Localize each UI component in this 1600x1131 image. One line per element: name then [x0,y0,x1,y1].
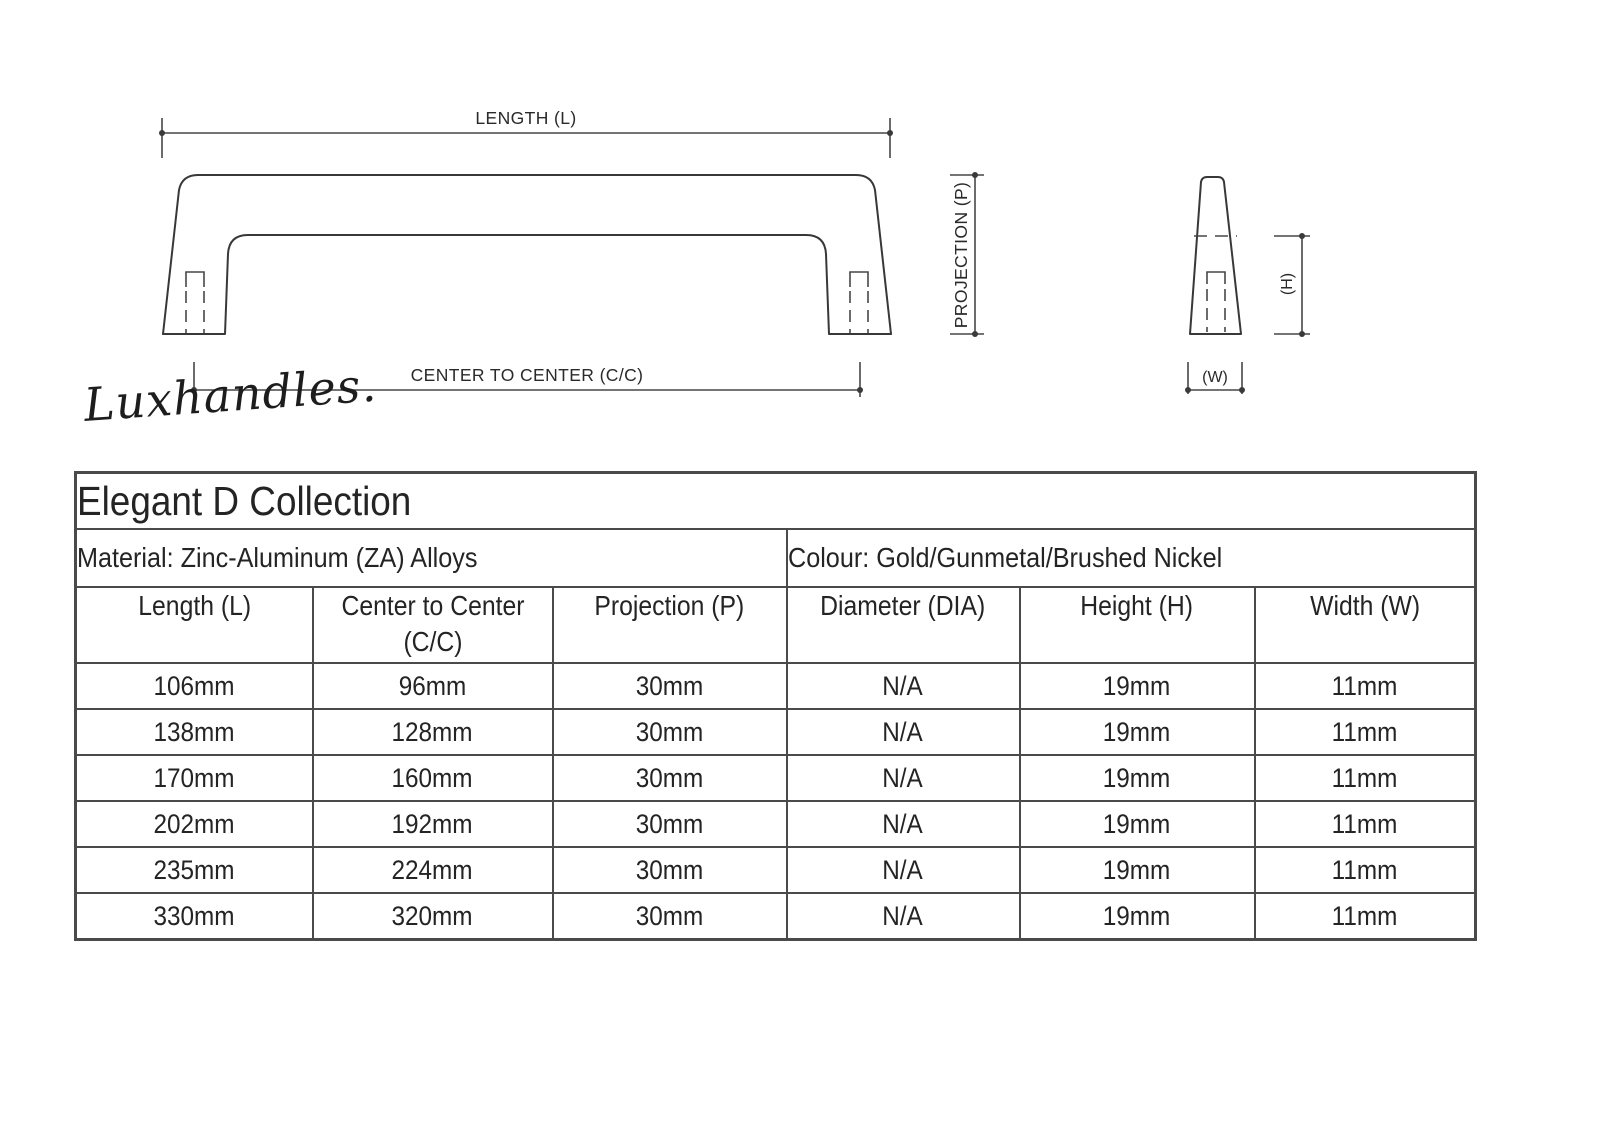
col-header-length: Length (L) [76,587,313,663]
length-dimension-dot-left [159,130,165,136]
length-dimension-label: LENGTH (L) [475,108,576,128]
cell-value: 19mm [1103,717,1171,748]
cell-value: 30mm [636,855,704,886]
col-header-label: Projection (P) [595,588,745,624]
table-row: 235mm 224mm 30mm N/A 19mm 11mm [76,847,1476,893]
cell-value: 160mm [392,763,473,794]
spec-sheet-page: LENGTH (L) CENTER TO CENTER (C/C) PROJEC… [0,0,1600,1131]
length-dimension: LENGTH (L) [159,108,893,158]
cell-value: 170mm [154,763,235,794]
table-cell: 30mm [553,801,787,847]
col-header-label: Diameter (DIA) [820,588,985,624]
cell-value: 30mm [636,763,704,794]
material-cell: Material: Zinc-Aluminum (ZA) Alloys [76,529,787,587]
table-cell: N/A [787,663,1020,709]
table-cell: 138mm [76,709,313,755]
table-cell: 235mm [76,847,313,893]
table-cell: 128mm [313,709,553,755]
cell-value: 19mm [1103,901,1171,932]
col-header-label: Length (L) [138,588,251,624]
table-cell: 30mm [553,893,787,940]
table-cell: 11mm [1255,847,1476,893]
cell-value: 224mm [392,855,473,886]
side-screw-hole-top [1207,272,1225,284]
height-dimension: (H) [1274,233,1310,337]
cell-value: N/A [883,763,924,794]
table-header-row: Length (L) Center to Center (C/C) Projec… [76,587,1476,663]
table-cell: N/A [787,847,1020,893]
c2c-dimension-label: CENTER TO CENTER (C/C) [411,365,644,385]
col-header-height: Height (H) [1020,587,1255,663]
projection-dimension-label: PROJECTION (P) [951,182,971,329]
cell-value: N/A [883,671,924,702]
cell-value: 19mm [1103,763,1171,794]
table-cell: 202mm [76,801,313,847]
cell-value: 11mm [1332,763,1398,794]
cell-value: 30mm [636,671,704,702]
width-dot-left [1185,387,1191,393]
cell-value: 30mm [636,809,704,840]
table-cell: 224mm [313,847,553,893]
table-row: 138mm 128mm 30mm N/A 19mm 11mm [76,709,1476,755]
table-row: 202mm 192mm 30mm N/A 19mm 11mm [76,801,1476,847]
cell-value: 19mm [1103,671,1171,702]
table-cell: 19mm [1020,847,1255,893]
handle-front-view [163,175,891,334]
left-screw-hole-top [186,272,204,287]
cell-value: N/A [883,901,924,932]
height-dot-top [1299,233,1305,239]
table-cell: N/A [787,755,1020,801]
table-cell: 19mm [1020,709,1255,755]
col-header-label: Center to Center (C/C) [325,588,539,660]
cell-value: 11mm [1332,717,1398,748]
cell-value: N/A [883,855,924,886]
colour-label: Colour: Gold/Gunmetal/Brushed Nickel [788,542,1222,574]
cell-value: 11mm [1332,809,1398,840]
handle-front-outline-inner [163,235,891,334]
table-cell: 192mm [313,801,553,847]
table-cell: 30mm [553,709,787,755]
table-cell: 19mm [1020,801,1255,847]
projection-dot-bottom [972,331,978,337]
cell-value: N/A [883,717,924,748]
collection-title: Elegant D Collection [77,478,411,525]
cell-value: 96mm [399,671,467,702]
table-cell: 19mm [1020,893,1255,940]
table-cell: 11mm [1255,893,1476,940]
cell-value: 11mm [1332,901,1398,932]
table-cell: 19mm [1020,663,1255,709]
cell-value: 30mm [636,717,704,748]
table-cell: 30mm [553,755,787,801]
c2c-dimension-dot-right [857,387,863,393]
table-cell: 330mm [76,893,313,940]
cell-value: N/A [883,809,924,840]
col-header-diameter: Diameter (DIA) [787,587,1020,663]
table-cell: 96mm [313,663,553,709]
table-title-row: Elegant D Collection [76,473,1476,530]
side-view-outline [1190,177,1241,334]
cell-value: 30mm [636,901,704,932]
col-header-label: Width (W) [1310,588,1420,624]
table-row: 106mm 96mm 30mm N/A 19mm 11mm [76,663,1476,709]
cell-value: 138mm [154,717,235,748]
material-label: Material: Zinc-Aluminum (ZA) Alloys [77,542,477,574]
col-header-width: Width (W) [1255,587,1476,663]
table-cell: 11mm [1255,663,1476,709]
table-cell: 30mm [553,663,787,709]
cell-value: 320mm [392,901,473,932]
cell-value: 11mm [1332,855,1398,886]
col-header-label: Height (H) [1081,588,1194,624]
handle-front-outline-outer [163,175,891,334]
length-dimension-dot-right [887,130,893,136]
table-cell: 11mm [1255,755,1476,801]
table-cell: N/A [787,893,1020,940]
cell-value: 128mm [392,717,473,748]
width-dimension: (W) [1185,362,1245,394]
colour-cell: Colour: Gold/Gunmetal/Brushed Nickel [787,529,1476,587]
table-cell: 19mm [1020,755,1255,801]
table-cell: N/A [787,709,1020,755]
cell-value: 19mm [1103,809,1171,840]
height-dimension-label: (H) [1279,273,1296,295]
cell-value: 19mm [1103,855,1171,886]
table-row: 170mm 160mm 30mm N/A 19mm 11mm [76,755,1476,801]
table-cell: 160mm [313,755,553,801]
col-header-center-to-center: Center to Center (C/C) [313,587,553,663]
right-screw-hole-top [850,272,868,287]
table-cell: 11mm [1255,801,1476,847]
width-dimension-label: (W) [1202,369,1228,386]
spec-table: Elegant D Collection Material: Zinc-Alum… [74,471,1477,941]
table-cell: 170mm [76,755,313,801]
cell-value: 192mm [392,809,473,840]
handle-side-view [1190,177,1241,334]
height-dot-bottom [1299,331,1305,337]
projection-dot-top [972,172,978,178]
table-cell: 11mm [1255,709,1476,755]
table-meta-row: Material: Zinc-Aluminum (ZA) Alloys Colo… [76,529,1476,587]
cell-value: 202mm [154,809,235,840]
table-cell: N/A [787,801,1020,847]
table-cell: 320mm [313,893,553,940]
cell-value: 330mm [154,901,235,932]
cell-value: 11mm [1332,671,1398,702]
cell-value: 235mm [154,855,235,886]
width-dot-right [1239,387,1245,393]
table-cell: 106mm [76,663,313,709]
table-row: 330mm 320mm 30mm N/A 19mm 11mm [76,893,1476,940]
collection-title-cell: Elegant D Collection [76,473,1476,530]
projection-dimension: PROJECTION (P) [950,172,984,337]
col-header-projection: Projection (P) [553,587,787,663]
table-cell: 30mm [553,847,787,893]
cell-value: 106mm [154,671,235,702]
